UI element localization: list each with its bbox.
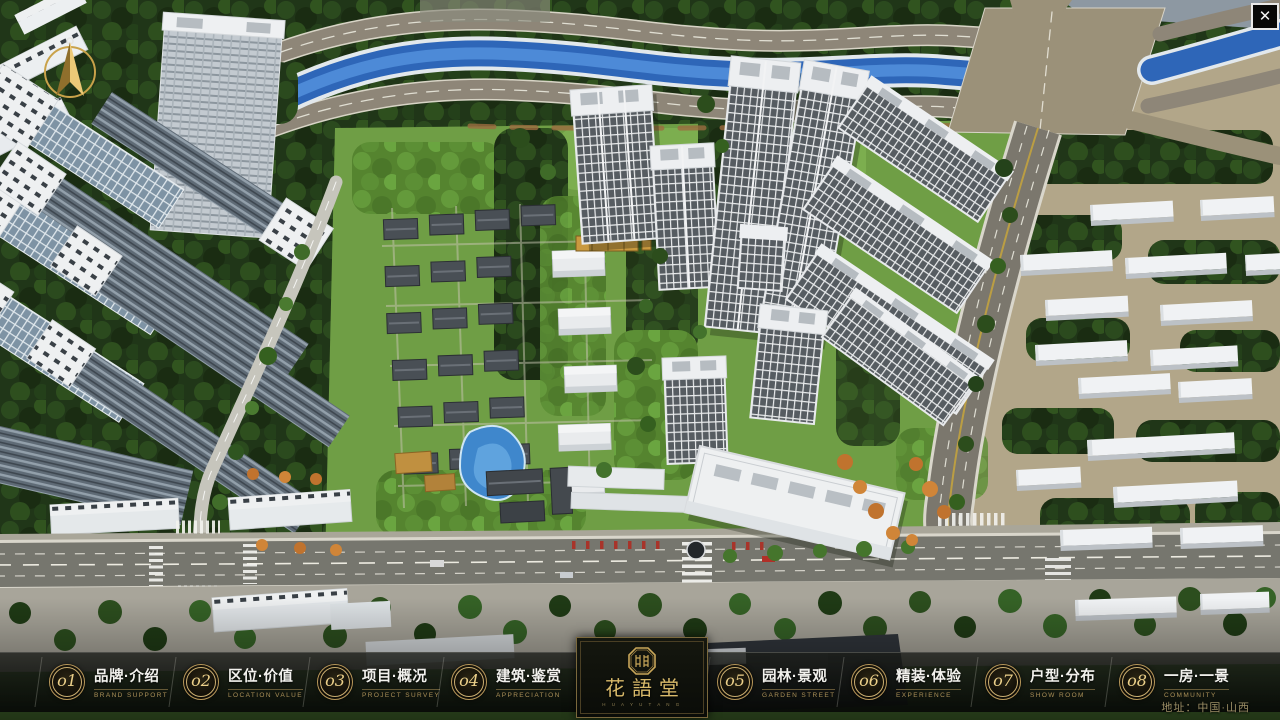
nav-label: 户型·分布 (1030, 665, 1095, 686)
nav-sublabel: SHOW ROOM (1030, 689, 1095, 699)
nav-sublabel: LOCATION VALUE (228, 689, 303, 699)
nav-sublabel: APPRECIATION (496, 689, 561, 699)
nav-sublabel: PROJECT SURVEY (362, 689, 440, 699)
nav-label: 项目·概况 (362, 665, 440, 686)
nav-number-badge: o4 (451, 664, 487, 700)
nav-item-brand[interactable]: o1品牌·介绍BRAND SUPPORT (38, 653, 172, 711)
nav-number-badge: o5 (717, 664, 753, 700)
nav-sublabel: BRAND SUPPORT (94, 689, 168, 699)
logo-inner-frame: 花語堂 H U A Y U T A N G (580, 641, 704, 714)
nav-label: 一房·一景 (1164, 665, 1229, 686)
nav-label: 建筑·鉴赏 (496, 665, 561, 686)
nav-item-floorplan[interactable]: o7户型·分布SHOW ROOM (974, 653, 1108, 711)
project-name: 花語堂 (598, 678, 686, 698)
nav-item-architecture[interactable]: o4建筑·鉴赏APPRECIATION (440, 653, 574, 711)
nav-item-garden[interactable]: o5园林·景观GARDEN STREET (706, 653, 840, 711)
seal-icon (627, 646, 657, 676)
project-name-caption: H U A Y U T A N G (602, 702, 681, 707)
project-address: 地址：中国·山西 (1161, 699, 1250, 715)
nav-sublabel: GARDEN STREET (762, 689, 835, 699)
nav-sublabel: EXPERIENCE (896, 689, 961, 699)
nav-number-badge: o8 (1119, 664, 1155, 700)
nav-number-badge: o7 (985, 664, 1021, 700)
nav-sublabel: COMMUNITY (1164, 689, 1229, 699)
nav-item-location[interactable]: o2区位·价值LOCATION VALUE (172, 653, 306, 711)
close-button[interactable]: ✕ (1251, 3, 1279, 30)
segment-divider (34, 657, 42, 707)
nav-number-badge: o1 (49, 664, 85, 700)
project-logo-panel[interactable]: 花語堂 H U A Y U T A N G (576, 637, 708, 718)
close-icon: ✕ (1259, 7, 1272, 25)
nav-item-interior[interactable]: o6精装·体验EXPERIENCE (840, 653, 974, 711)
nav-number-badge: o6 (851, 664, 887, 700)
nav-number-badge: o2 (183, 664, 219, 700)
nav-number-badge: o3 (317, 664, 353, 700)
site-map-render[interactable] (0, 0, 1280, 720)
nav-label: 园林·景观 (762, 665, 835, 686)
presentation-window: o1品牌·介绍BRAND SUPPORT o2区位·价值LOCATION VAL… (0, 0, 1280, 720)
gate-moon-feature (687, 541, 705, 559)
nav-label: 区位·价值 (228, 665, 303, 686)
nav-label: 品牌·介绍 (94, 665, 168, 686)
nav-item-project[interactable]: o3项目·概况PROJECT SURVEY (306, 653, 440, 711)
nav-label: 精装·体验 (896, 665, 961, 686)
